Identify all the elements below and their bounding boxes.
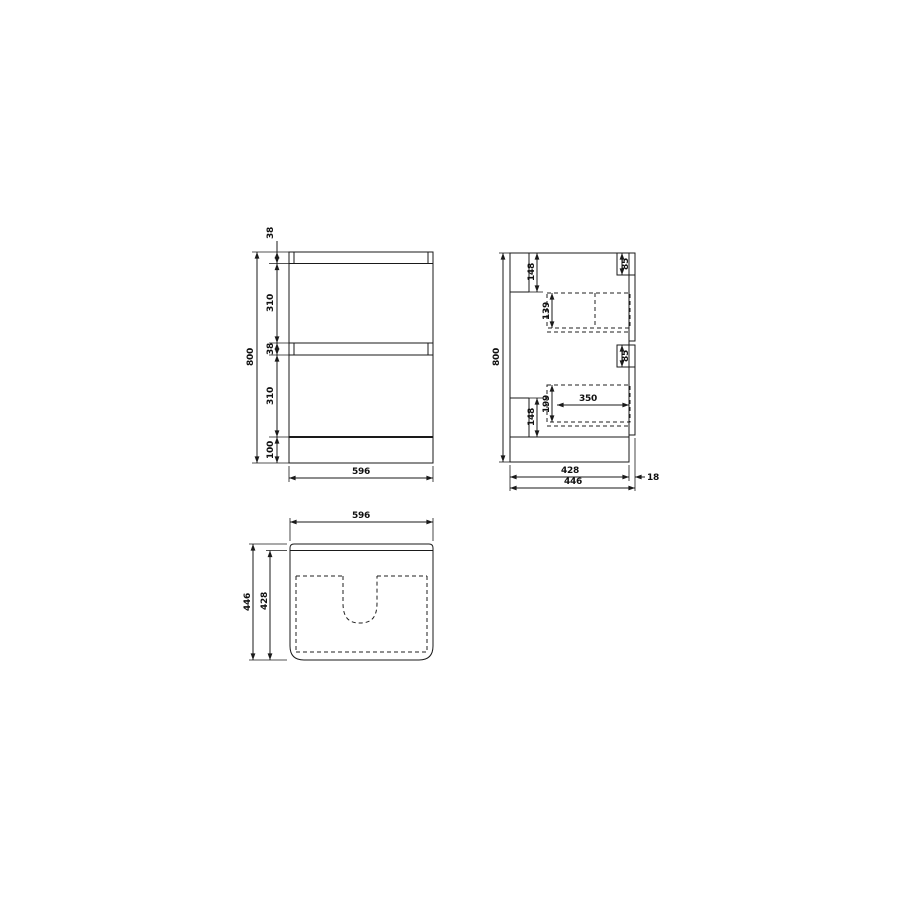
drawing-sheet: 800 38 310 38 310 100 596 (0, 0, 900, 900)
plan-view: 596 446 428 (243, 511, 433, 660)
dim-front-plinth: 100 (266, 441, 276, 459)
front-view: 800 38 310 38 310 100 596 (246, 227, 433, 482)
dim-plan-internal-depth: 428 (260, 592, 270, 610)
dim-front-mid-rail: 38 (266, 343, 276, 355)
dim-side-bottom-lip: 85 (621, 350, 631, 362)
dim-side-overall-depth: 446 (564, 477, 582, 487)
dim-plan-overall-depth: 446 (243, 593, 253, 611)
dim-side-top-lip: 85 (621, 258, 631, 270)
technical-drawing: 800 38 310 38 310 100 596 (0, 0, 900, 900)
side-top-drawer-box-hidden (547, 293, 630, 328)
front-cabinet-outline (289, 252, 433, 463)
dim-side-bottom-drawer-internal: 199 (542, 395, 552, 413)
dim-side-front-thickness: 18 (647, 473, 659, 483)
dim-side-top-drawer-internal: 139 (542, 302, 552, 320)
dim-front-top-drawer: 310 (266, 294, 276, 312)
dim-plan-width: 596 (352, 511, 370, 521)
dim-side-drawer-depth: 350 (579, 394, 597, 404)
dim-front-width: 596 (352, 467, 370, 477)
dim-side-back-rail-top: 148 (527, 263, 537, 281)
side-view: 800 148 85 139 85 199 350 148 428 18 (492, 253, 659, 491)
plan-u-cutout-hidden (343, 576, 377, 623)
plan-outline (290, 544, 433, 660)
dim-front-top-rail: 38 (266, 227, 276, 239)
dim-side-back-rail-bottom: 148 (527, 408, 537, 426)
dim-front-overall-height: 800 (246, 348, 256, 366)
dim-side-overall-height: 800 (492, 348, 502, 366)
side-carcass-outline (510, 253, 629, 462)
dim-side-carcass-depth: 428 (561, 466, 579, 476)
dim-front-bottom-drawer: 310 (266, 387, 276, 405)
